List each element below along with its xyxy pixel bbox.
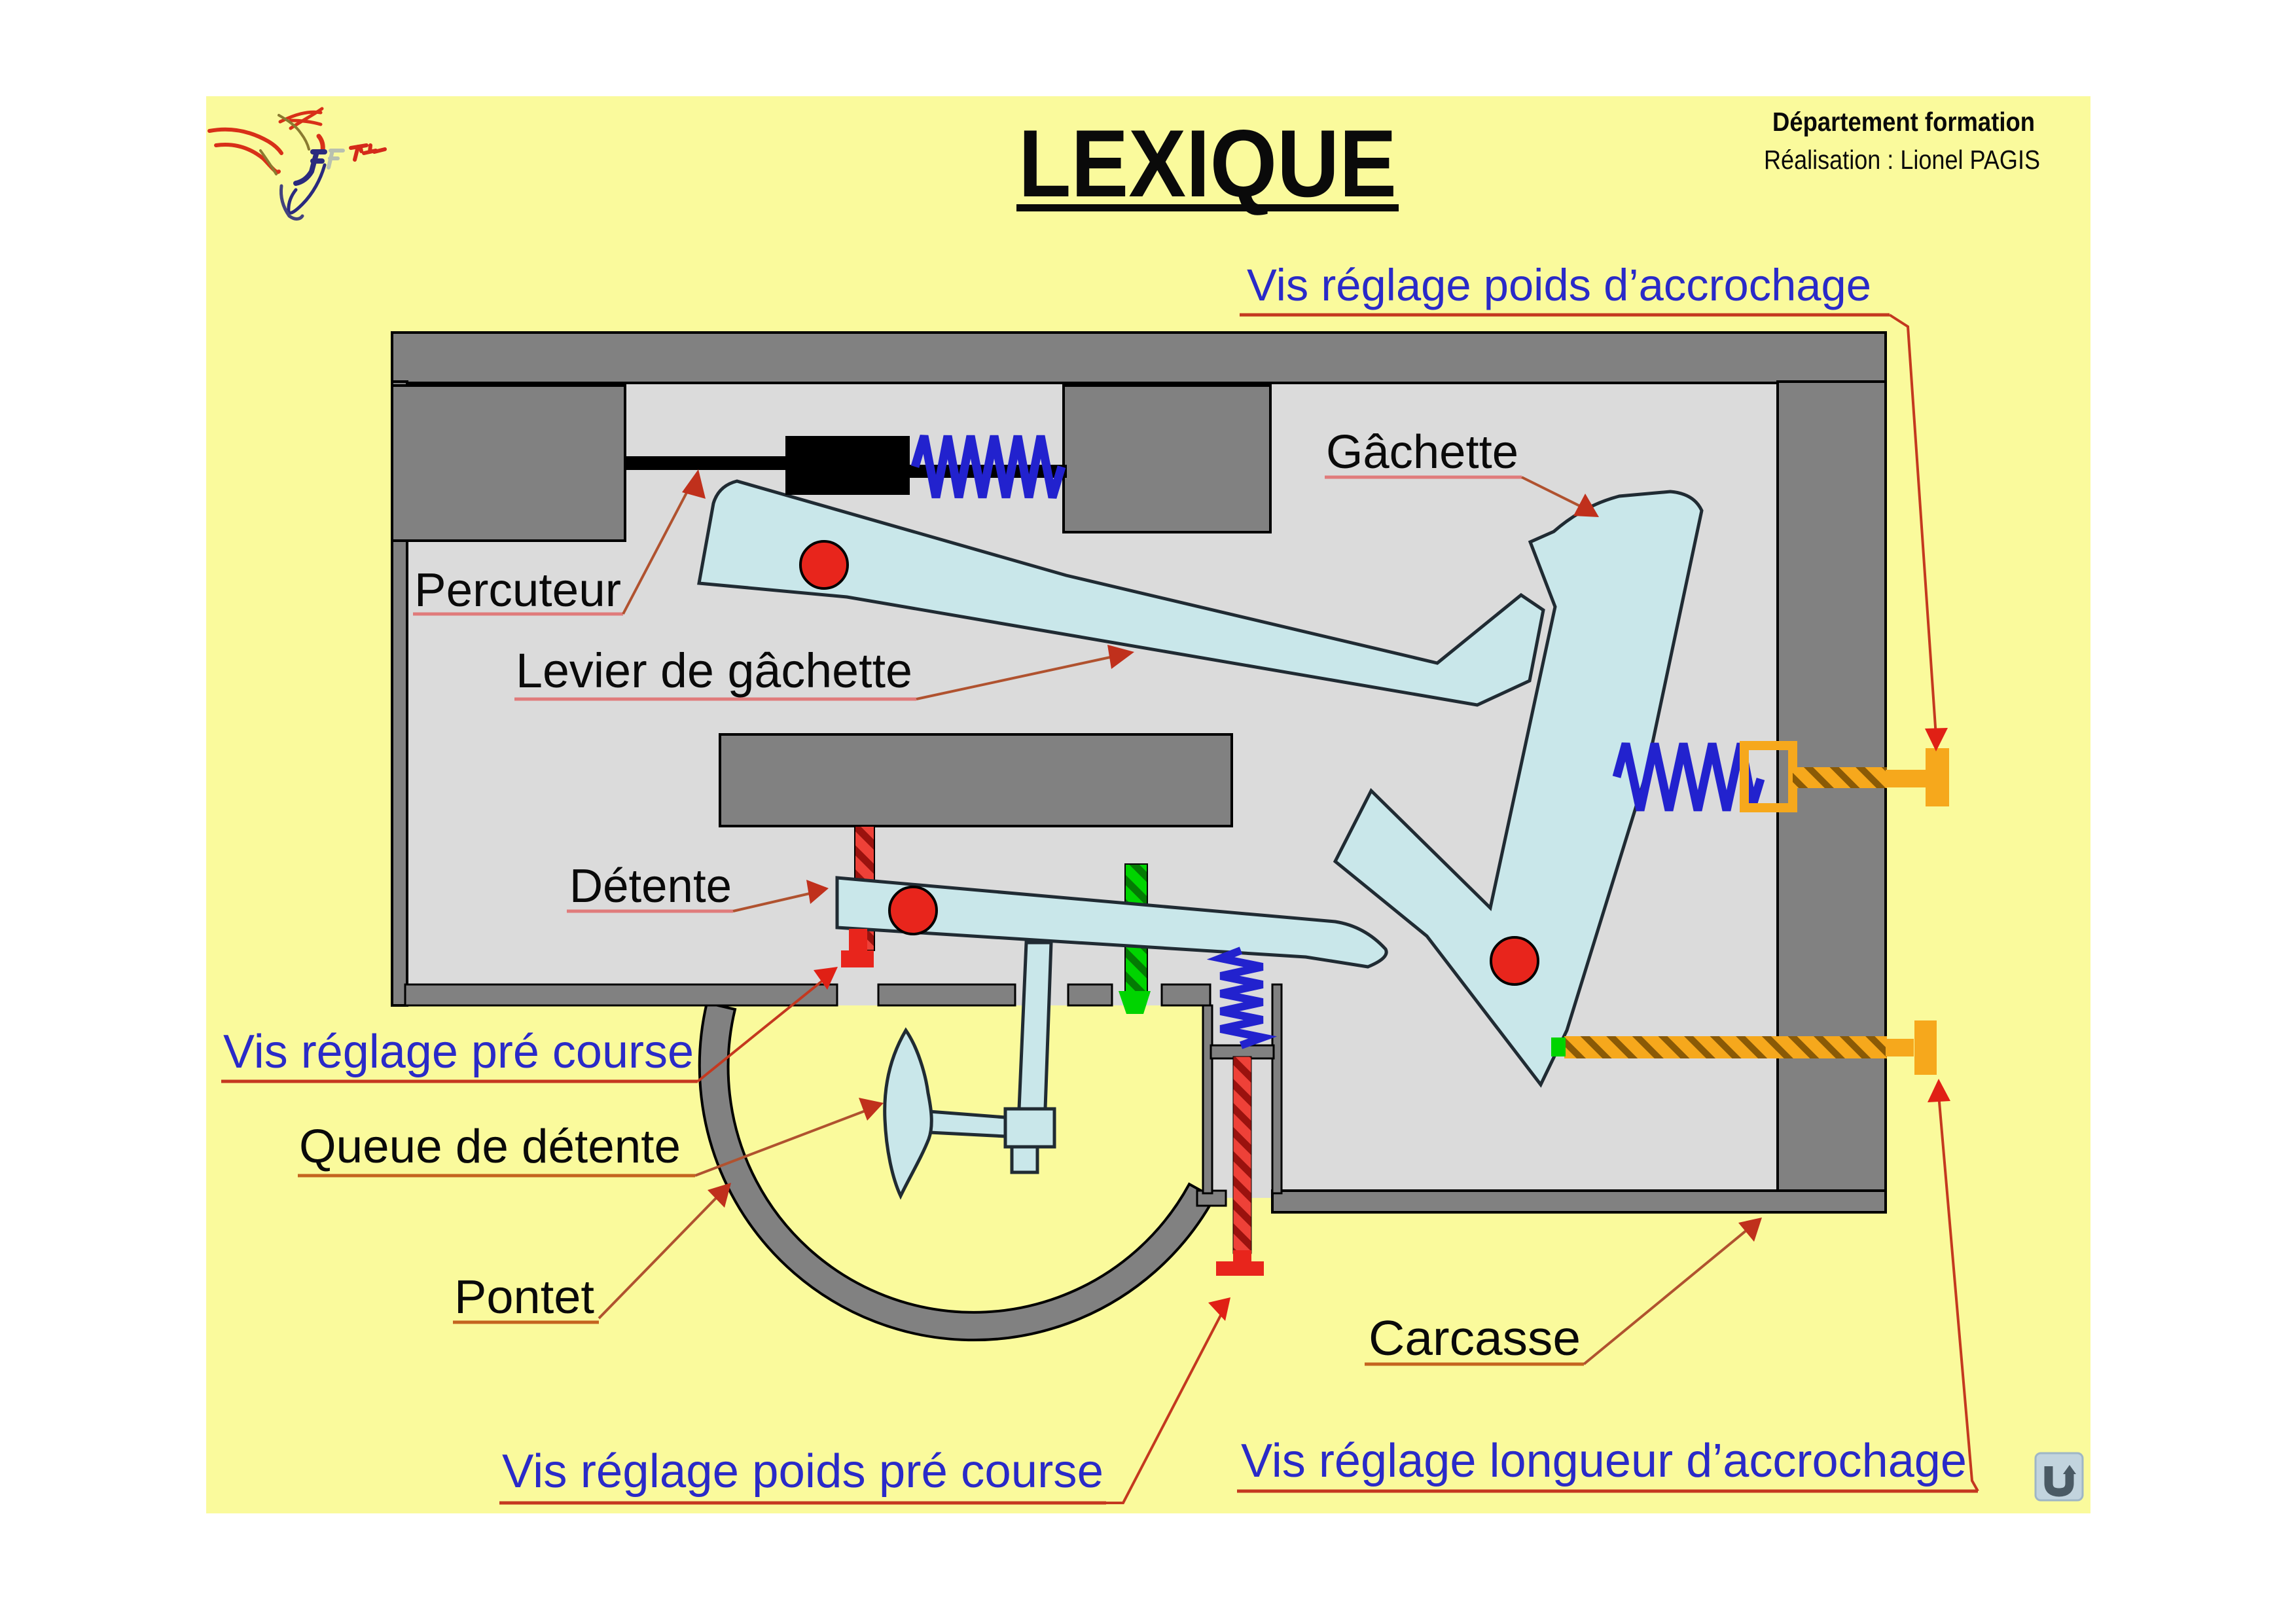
svg-text:Vis réglage poids d’accrochage: Vis réglage poids d’accrochage [1247,260,1871,310]
svg-text:Queue de détente: Queue de détente [299,1121,681,1173]
svg-text:Gâchette: Gâchette [1326,426,1518,478]
svg-text:Vis réglage poids pré course: Vis réglage poids pré course [502,1445,1103,1498]
svg-text:Carcasse: Carcasse [1369,1310,1581,1365]
svg-text:LEXIQUE: LEXIQUE [1018,110,1397,217]
svg-text:Percuteur: Percuteur [414,564,621,617]
svg-text:Vis réglage longueur d’accroch: Vis réglage longueur d’accrochage [1241,1435,1967,1487]
svg-text:Détente: Détente [569,860,732,912]
svg-text:Pontet: Pontet [454,1271,594,1324]
svg-text:Vis réglage pré course: Vis réglage pré course [223,1026,694,1078]
svg-text:Réalisation : Lionel PAGIS: Réalisation : Lionel PAGIS [1764,145,2040,175]
svg-text:Levier de gâchette: Levier de gâchette [516,643,912,698]
svg-text:Département formation: Département formation [1772,107,2035,137]
